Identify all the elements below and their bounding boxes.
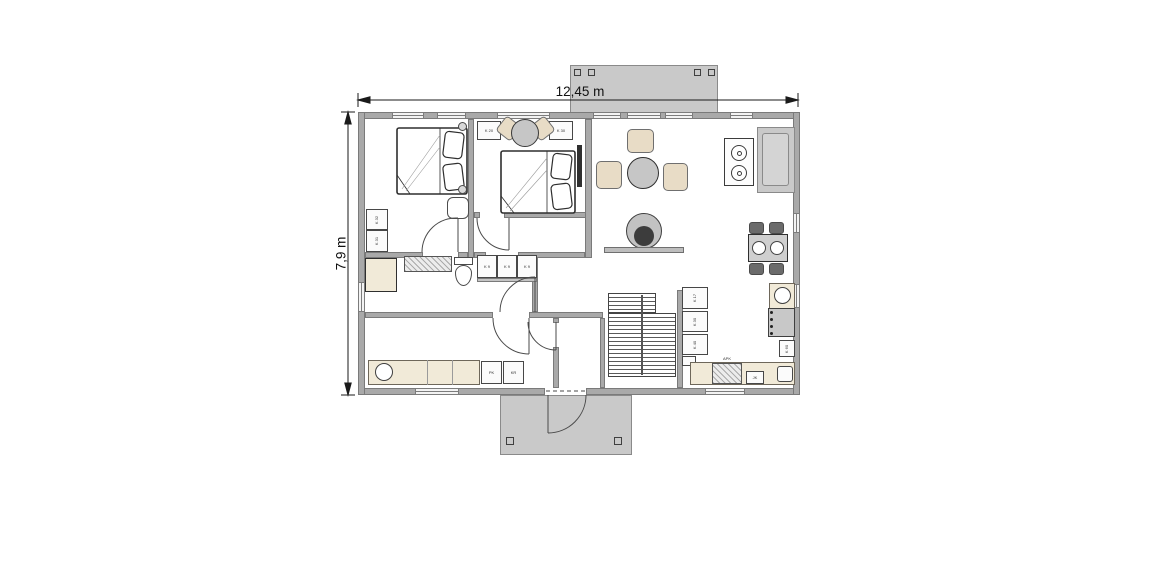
wall-left xyxy=(358,112,365,395)
appliance-label: PK xyxy=(489,371,494,375)
door-arc xyxy=(500,277,535,312)
wall-bedroom2-right xyxy=(585,119,592,258)
wall-laundry-right xyxy=(553,318,559,323)
dimension-label-width: 12,45 m xyxy=(540,84,620,99)
wall-lamp xyxy=(458,185,467,194)
stove-burner-center xyxy=(737,171,742,176)
kitchen-cabinet: K 30 xyxy=(682,311,708,332)
window xyxy=(437,112,466,119)
door-arc xyxy=(422,218,458,252)
vanity-counter-edge xyxy=(477,278,537,282)
window xyxy=(392,112,424,119)
wall-hall-bottom xyxy=(529,312,603,318)
wall-bedroom-divider xyxy=(468,119,474,258)
wall-bedroom2-bottom xyxy=(474,212,480,218)
kitchen-corner-cabinet xyxy=(777,366,793,382)
stairs-upper-flight xyxy=(608,293,656,313)
window xyxy=(415,388,459,395)
mantel-shelf xyxy=(604,247,684,253)
stove-knob xyxy=(770,318,773,321)
window xyxy=(358,282,365,312)
window xyxy=(705,388,745,395)
wall-laundry-right xyxy=(553,347,559,388)
nightstand-label: K 30 xyxy=(557,129,565,133)
armchair xyxy=(596,161,622,189)
vanity-cabinet: K 9 xyxy=(477,255,497,278)
kitchen-cabinet: K 40 xyxy=(682,334,708,355)
cabinet-label: K 17 xyxy=(693,294,697,302)
stove-burner-center xyxy=(737,151,742,156)
kitchen-base-cabinet: K 60 xyxy=(779,340,795,357)
wardrobe-bar xyxy=(577,145,582,187)
porch-post xyxy=(506,437,514,445)
fireplace-hearth xyxy=(634,226,654,246)
dishwasher-label: APK xyxy=(712,357,742,362)
armchair xyxy=(627,129,654,153)
wardrobe-cabinet: K 32 xyxy=(366,209,388,230)
nightstand-label: K 20 xyxy=(485,129,493,133)
wall-bottom-right xyxy=(586,388,800,395)
kitchen-cabinet: K 17 xyxy=(682,287,708,309)
dining-chair xyxy=(769,263,784,275)
cabinet-label: K 9 xyxy=(524,265,530,269)
armchair xyxy=(663,163,688,191)
floor-plan: K 32 K 31 K 20 K 30 K 9 K 9 K 9 xyxy=(0,0,1160,568)
window xyxy=(627,112,661,119)
place-setting xyxy=(770,241,784,255)
terrace-post xyxy=(588,69,595,76)
cabinet-label: K 9 xyxy=(484,265,490,269)
dining-chair xyxy=(769,222,784,234)
stairs-divider xyxy=(641,295,643,375)
cabinet-label: K 60 xyxy=(785,344,789,352)
wall-lamp xyxy=(458,122,467,131)
appliance-label: KR xyxy=(511,371,517,375)
round-table xyxy=(627,157,659,189)
wardrobe-cabinet: K 31 xyxy=(366,230,388,252)
laundry-sink xyxy=(375,363,393,381)
counter-divider xyxy=(427,360,428,385)
fridge-cabinet: JK xyxy=(746,371,764,384)
terrace-post xyxy=(708,69,715,76)
dimension-label-height: 7,9 m xyxy=(334,221,349,287)
dining-chair xyxy=(749,222,764,234)
window xyxy=(593,112,621,119)
window xyxy=(793,213,800,233)
cabinet-label: K 32 xyxy=(375,215,379,223)
double-bed xyxy=(396,127,468,195)
stove-knob xyxy=(770,311,773,314)
door-arc xyxy=(477,218,509,250)
cabinet-label: K 40 xyxy=(693,340,697,348)
place-setting xyxy=(752,241,766,255)
terrace-post xyxy=(574,69,581,76)
cabinet-label: K 9 xyxy=(504,265,510,269)
wall-hall-bottom xyxy=(365,312,493,318)
stove-knob xyxy=(770,325,773,328)
small-round-table xyxy=(511,119,539,147)
vanity-cabinet: K 9 xyxy=(517,255,537,278)
dryer: KR xyxy=(503,361,524,384)
door-arc xyxy=(493,318,529,354)
bench-cushion xyxy=(762,133,789,186)
window xyxy=(730,112,753,119)
washing-machine: PK xyxy=(481,361,502,384)
dining-chair xyxy=(749,263,764,275)
cabinet-label: K 31 xyxy=(375,237,379,245)
door-arc xyxy=(528,322,556,350)
counter-divider xyxy=(452,360,453,385)
window xyxy=(665,112,693,119)
cabinet-label: K 30 xyxy=(693,317,697,325)
bedroom-chair xyxy=(447,197,469,219)
stove-knob xyxy=(770,332,773,335)
coat-rack xyxy=(404,256,452,272)
terrace-post xyxy=(694,69,701,76)
toilet-bowl xyxy=(455,265,472,286)
wall-stairs-left xyxy=(600,318,605,388)
porch-post xyxy=(614,437,622,445)
vanity-cabinet: K 9 xyxy=(497,255,517,278)
kitchen-sink xyxy=(774,287,791,304)
dishwasher xyxy=(712,363,742,384)
entrance-porch xyxy=(500,395,632,455)
double-bed xyxy=(500,150,576,214)
hall-closet xyxy=(365,258,397,292)
cabinet-label: JK xyxy=(753,376,758,380)
toilet-tank xyxy=(454,257,473,265)
